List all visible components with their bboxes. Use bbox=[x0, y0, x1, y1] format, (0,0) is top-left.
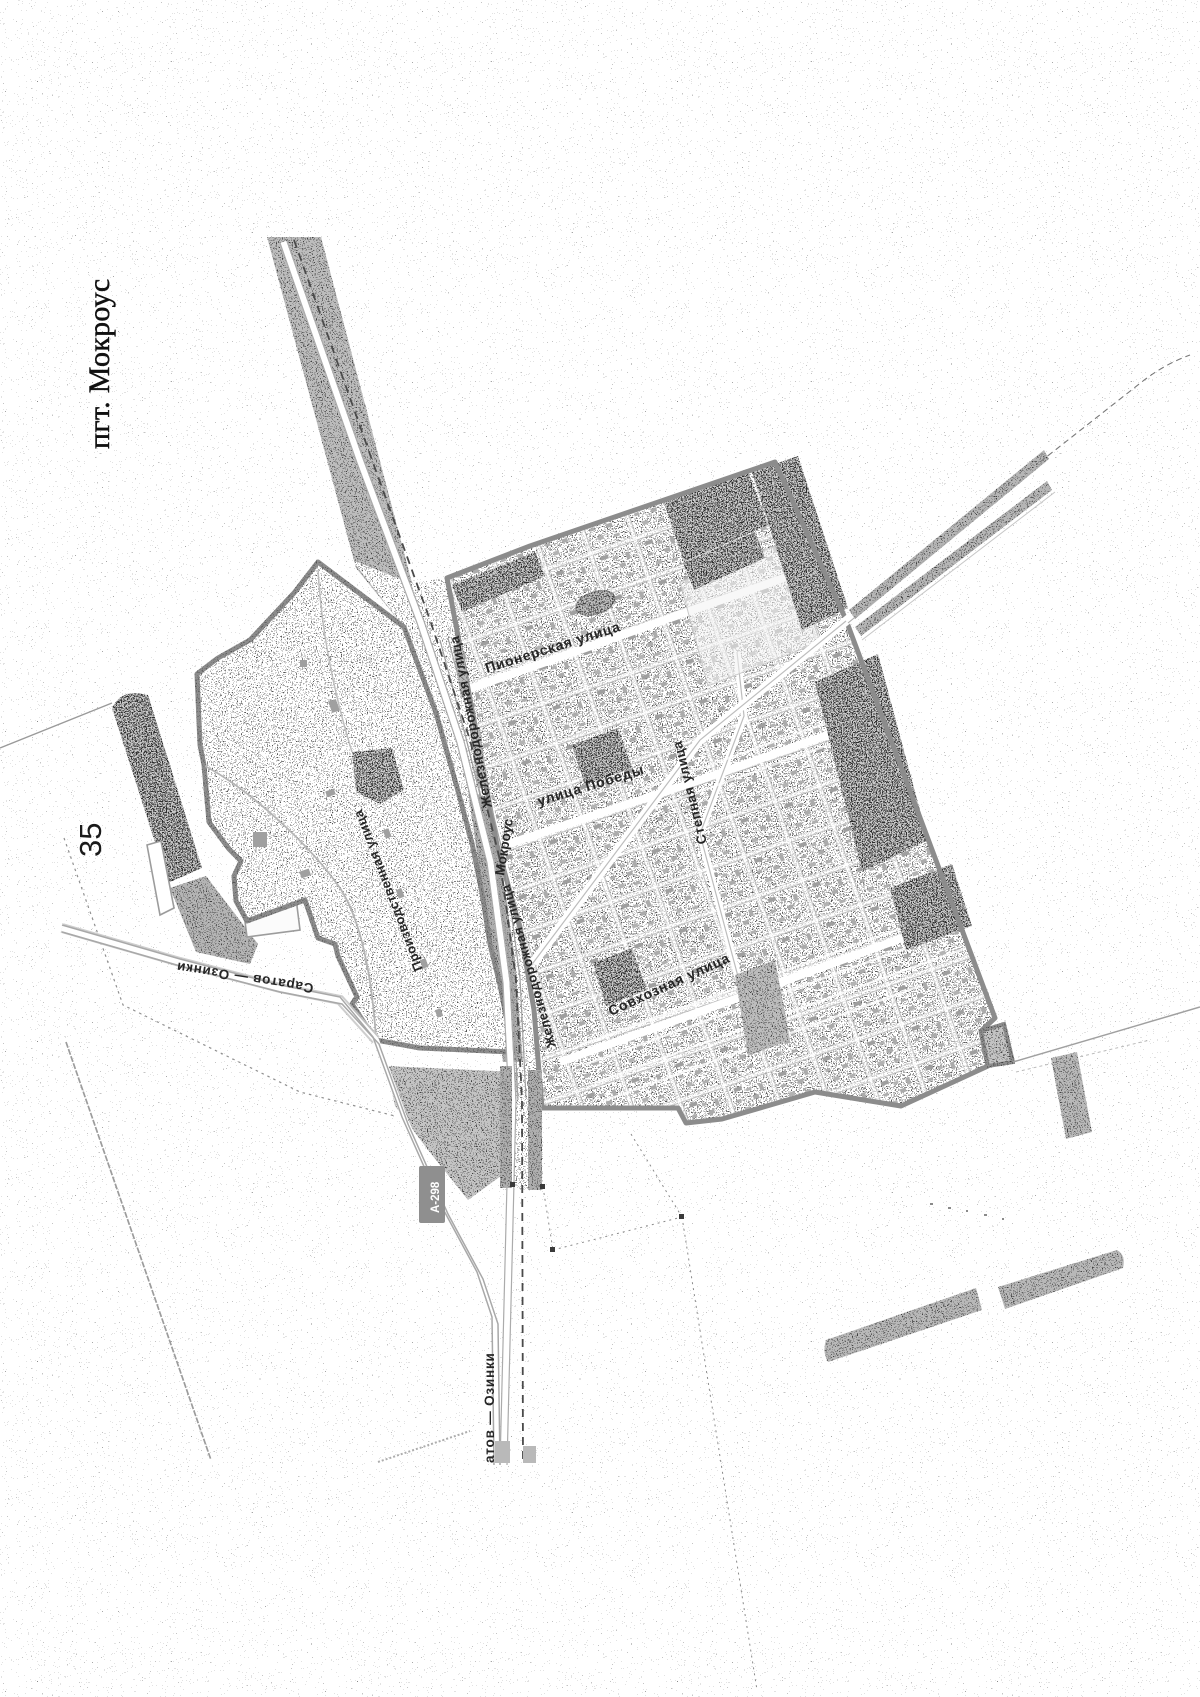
svg-text:А-298: А-298 bbox=[430, 1181, 442, 1213]
svg-text:атов — Озинки: атов — Озинки bbox=[482, 1352, 497, 1463]
svg-text:35: 35 bbox=[73, 823, 108, 857]
svg-text:пгт. Мокроус: пгт. Мокроус bbox=[83, 279, 116, 450]
